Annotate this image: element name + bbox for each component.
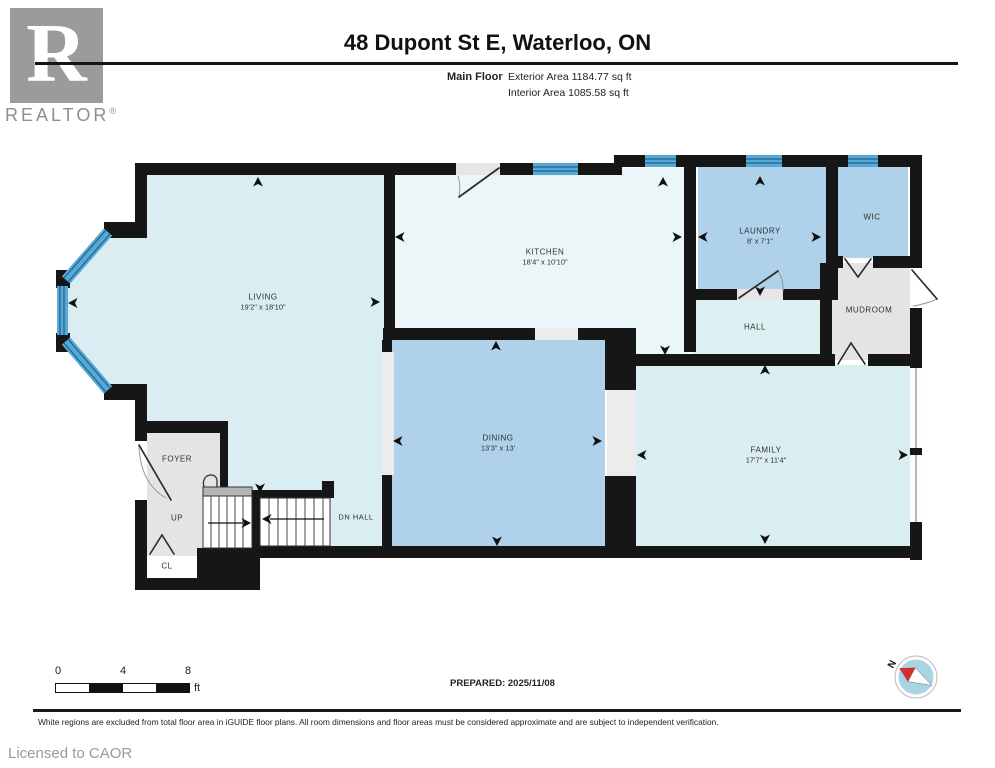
compass: N bbox=[882, 654, 937, 698]
scale-unit: ft bbox=[194, 682, 200, 694]
room-label-wic: WIC bbox=[863, 213, 880, 222]
window-wic-top bbox=[848, 155, 878, 167]
compass-n-label: N bbox=[884, 658, 897, 670]
realtor-logo-r: R bbox=[26, 12, 87, 96]
realtor-logo: R bbox=[10, 8, 103, 103]
floor-plan-canvas: N bbox=[0, 0, 995, 768]
room-label-dining: DINING 13'3" x 13' bbox=[481, 434, 515, 453]
room-label-living: LIVING 19'2" x 18'10" bbox=[240, 293, 285, 312]
scale-bar bbox=[55, 683, 190, 693]
realtor-wordmark: REALTOR® bbox=[5, 105, 116, 126]
registered-mark: ® bbox=[109, 106, 116, 116]
room-label-dn-hall: DN HALL bbox=[338, 513, 373, 522]
window-laundry-top bbox=[746, 155, 782, 167]
room-label-hall: HALL bbox=[744, 323, 766, 332]
window-family-right-1 bbox=[910, 368, 922, 448]
window-kitchen-top bbox=[533, 163, 578, 175]
scale-tick-0: 0 bbox=[55, 665, 61, 677]
window-family-right-2 bbox=[910, 455, 922, 522]
room-label-kitchen: KITCHEN 18'4" x 10'10" bbox=[522, 248, 567, 267]
room-label-family: FAMILY 17'7" x 11'4" bbox=[746, 446, 787, 465]
footer-divider bbox=[33, 709, 961, 712]
disclaimer-text: White regions are excluded from total fl… bbox=[38, 717, 958, 727]
door-mudroom-exterior bbox=[910, 268, 937, 308]
room-label-laundry: LAUNDRY 8' x 7'1" bbox=[739, 227, 781, 246]
room-label-foyer: FOYER bbox=[162, 455, 192, 464]
scale-tick-4: 4 bbox=[120, 665, 126, 677]
room-label-up: UP bbox=[171, 514, 183, 523]
window-strip-top bbox=[645, 155, 676, 167]
title-divider bbox=[35, 62, 958, 65]
prepared-date: PREPARED: 2025/11/08 bbox=[450, 678, 555, 689]
floor-plan-page: R REALTOR® 48 Dupont St E, Waterloo, ON … bbox=[0, 0, 995, 768]
room-label-cl: CL bbox=[161, 562, 172, 571]
stairs-down bbox=[260, 498, 330, 546]
room-label-mudroom: MUDROOM bbox=[846, 306, 893, 315]
scale-tick-8: 8 bbox=[185, 665, 191, 677]
license-text: Licensed to CAOR bbox=[8, 745, 132, 762]
